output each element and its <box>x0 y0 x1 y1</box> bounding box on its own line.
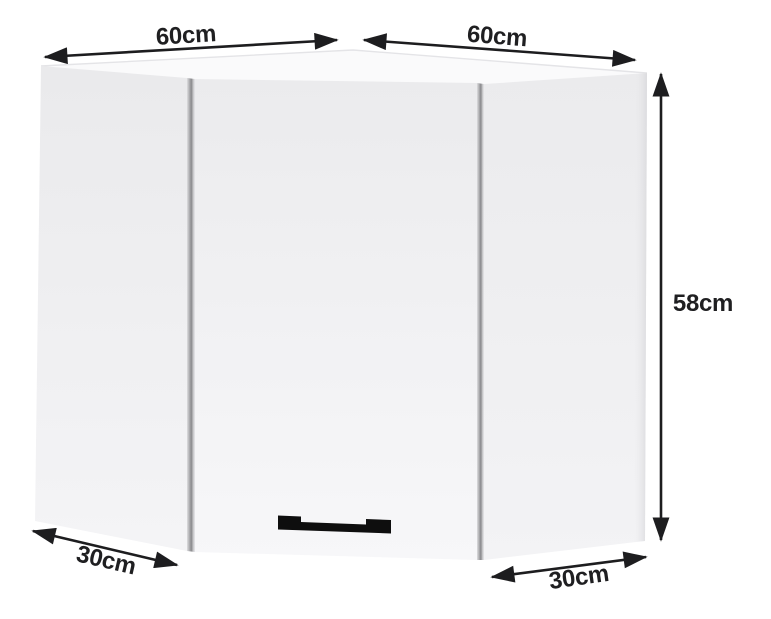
dimension-label-top-left-width: 60cm <box>155 20 217 52</box>
cabinet-right-edge-shading <box>634 73 647 542</box>
product-dimension-diagram: 60cm 60cm 58cm 30cm 30cm <box>0 0 771 619</box>
dimension-label-height: 58cm <box>673 290 733 318</box>
cabinet-right-seam <box>477 83 484 560</box>
cabinet-corner-door <box>195 79 477 560</box>
dimension-label-top-right-width: 60cm <box>466 21 528 54</box>
cabinet-left-side-panel <box>35 66 187 551</box>
cabinet-left-seam <box>187 78 195 552</box>
cabinet-right-side-panel <box>484 73 647 560</box>
cabinet-drawing <box>0 0 771 619</box>
